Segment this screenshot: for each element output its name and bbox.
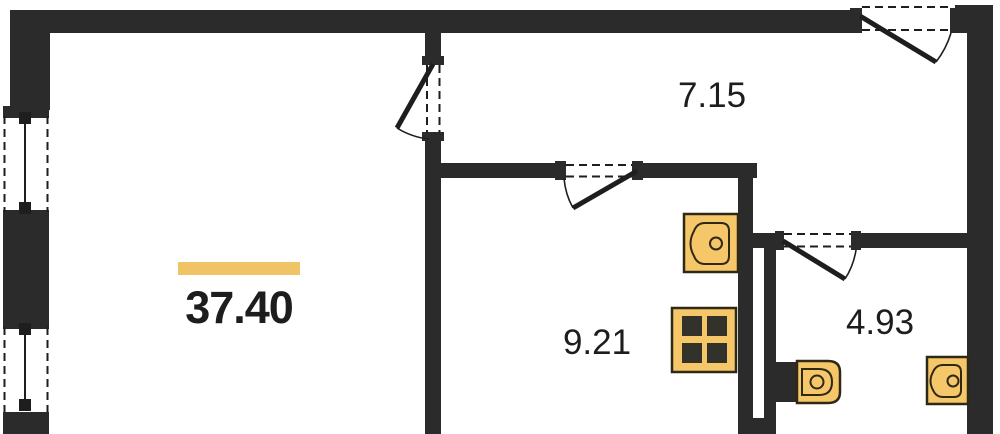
door-swing-icon bbox=[860, 7, 951, 62]
toilet-icon bbox=[773, 361, 840, 403]
plan-symbols-layer bbox=[0, 0, 1000, 434]
stove-burner bbox=[682, 343, 702, 363]
door-leaf bbox=[860, 16, 936, 62]
stove-burner bbox=[707, 316, 727, 336]
door-swing-icon bbox=[397, 64, 440, 139]
window-icon bbox=[5, 112, 48, 214]
washbasin-icon bbox=[927, 357, 968, 404]
stove-burner bbox=[707, 343, 727, 363]
toilet-tank bbox=[773, 362, 797, 402]
stove-burner bbox=[682, 316, 702, 336]
kitchen-sink-icon bbox=[684, 214, 738, 272]
door-swing-arc bbox=[397, 128, 429, 139]
area-highlight-bar bbox=[178, 262, 300, 275]
floor-plan: 37.40 7.15 9.21 4.93 bbox=[0, 0, 1000, 434]
toilet-bowl bbox=[797, 361, 840, 403]
room-area-label-hall: 7.15 bbox=[667, 78, 757, 113]
door-swing-arc bbox=[564, 178, 573, 208]
door-swing-icon bbox=[564, 165, 637, 208]
total-area-label: 37.40 bbox=[172, 285, 306, 330]
room-area-label-bathroom: 4.93 bbox=[835, 305, 925, 340]
door-swing-arc bbox=[845, 250, 856, 279]
door-swing-arc bbox=[936, 33, 951, 62]
window-icon bbox=[5, 323, 48, 412]
room-area-label-kitchen: 9.21 bbox=[552, 325, 642, 360]
door-swing-icon bbox=[783, 234, 856, 279]
stove-icon bbox=[672, 308, 736, 372]
